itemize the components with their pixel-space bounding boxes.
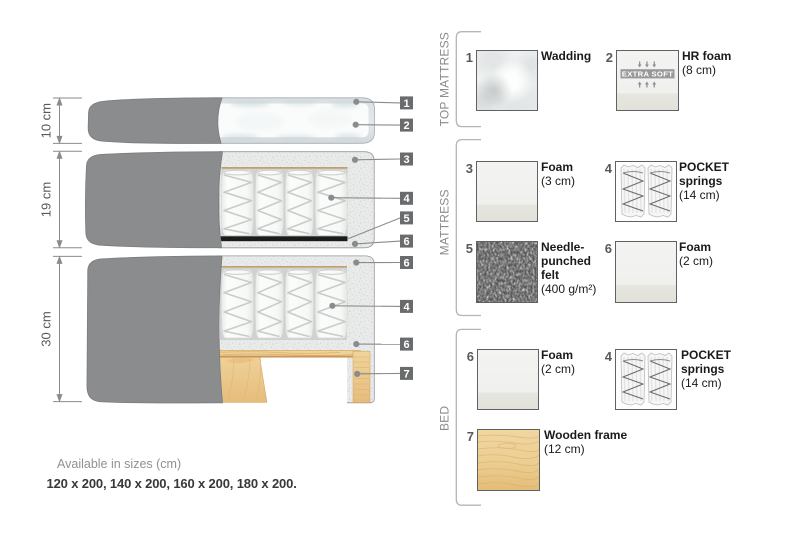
svg-text:TOP MATTRESS: TOP MATTRESS	[438, 32, 452, 126]
svg-text:BED: BED	[438, 406, 452, 431]
svg-text:4: 4	[403, 193, 410, 205]
svg-text:30 cm: 30 cm	[38, 311, 53, 346]
svg-text:7: 7	[403, 368, 409, 380]
svg-text:3: 3	[403, 154, 409, 166]
svg-text:5: 5	[403, 213, 409, 225]
svg-text:MATTRESS: MATTRESS	[438, 189, 452, 255]
svg-text:6: 6	[403, 236, 409, 248]
svg-text:19 cm: 19 cm	[38, 182, 53, 217]
svg-text:6: 6	[403, 257, 409, 269]
svg-text:EXTRA SOFT: EXTRA SOFT	[622, 69, 673, 78]
svg-text:2: 2	[403, 120, 409, 132]
svg-text:10 cm: 10 cm	[38, 103, 53, 138]
svg-text:6: 6	[403, 339, 409, 351]
svg-text:1: 1	[403, 98, 409, 110]
svg-text:4: 4	[403, 301, 410, 313]
